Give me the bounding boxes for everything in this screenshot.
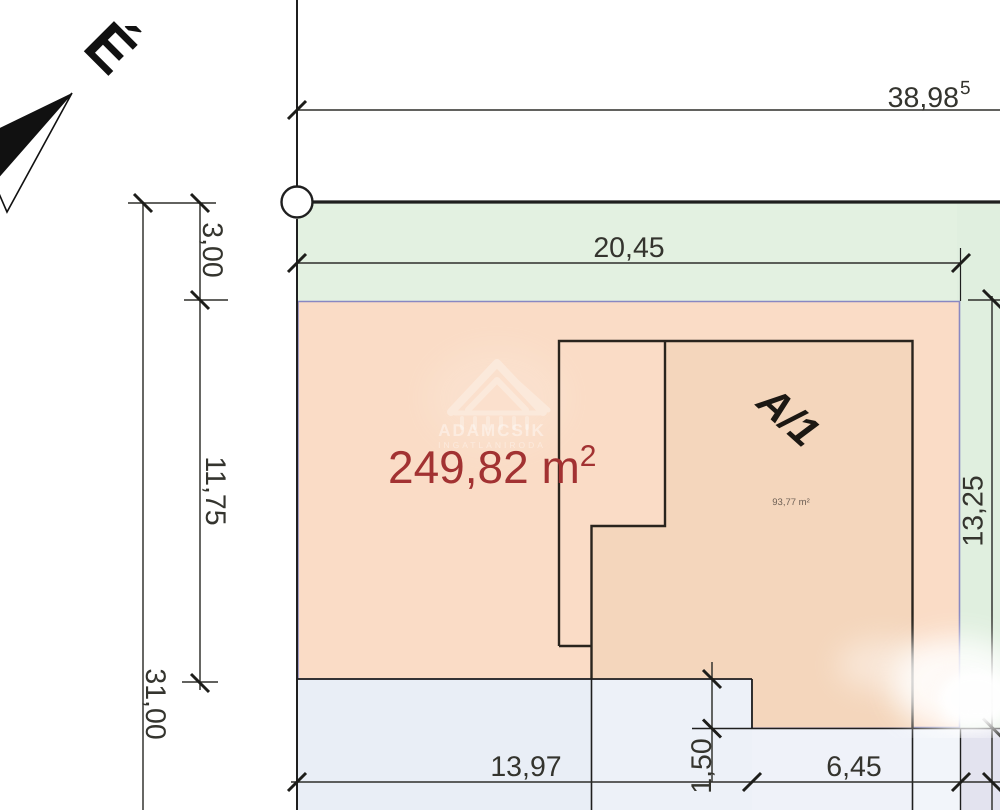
svg-text:1,50: 1,50 [686, 738, 718, 793]
svg-text:ADAMCSIK: ADAMCSIK [438, 421, 546, 440]
svg-text:249,82 m2: 249,82 m2 [388, 440, 596, 493]
svg-text:93,77 m²: 93,77 m² [772, 497, 810, 508]
svg-text:31,00: 31,00 [139, 668, 171, 739]
svg-text:13,25: 13,25 [958, 475, 990, 546]
svg-text:6,45: 6,45 [826, 751, 881, 783]
svg-text:20,45: 20,45 [593, 232, 664, 264]
svg-text:11,75: 11,75 [199, 456, 231, 525]
svg-text:5: 5 [960, 78, 971, 99]
svg-text:3,00: 3,00 [196, 222, 228, 277]
svg-text:38,98: 38,98 [888, 82, 959, 114]
svg-text:13,97: 13,97 [490, 751, 561, 783]
